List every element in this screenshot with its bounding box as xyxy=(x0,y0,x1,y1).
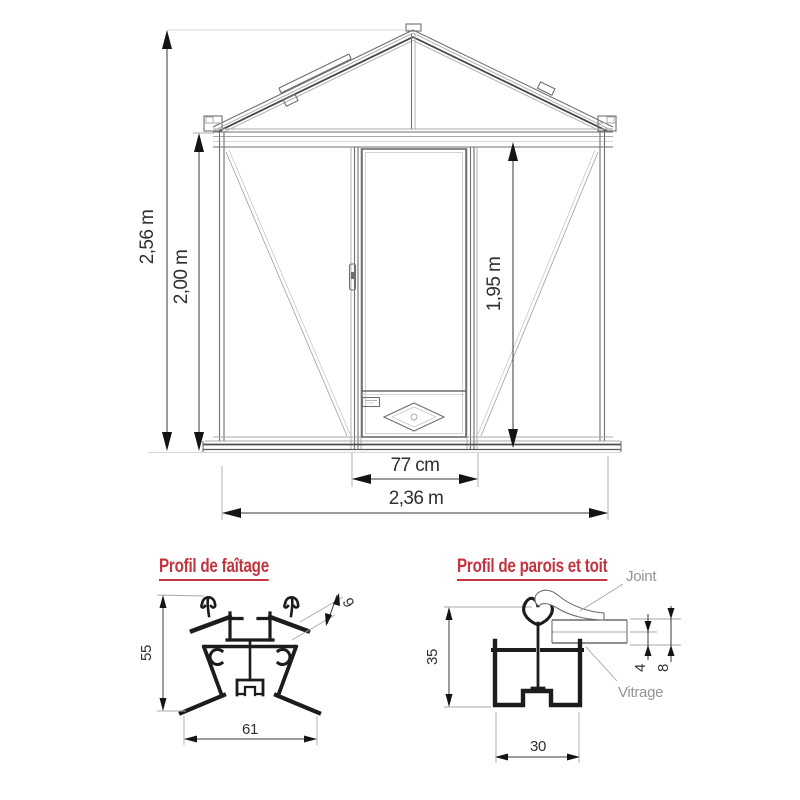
dim-wall-profile-height-label: 35 xyxy=(424,649,441,665)
dim-wall-profile-width-label: 30 xyxy=(530,738,546,755)
door-label-plate xyxy=(363,398,380,407)
dim-wall-height: 2,00 m xyxy=(171,133,214,451)
technical-drawing-canvas: 2,56 m 2,00 m 1,95 m xyxy=(0,0,800,800)
dim-total-height: 2,56 m xyxy=(137,30,411,451)
wall-roof-profile-title: Profil de parois et toit xyxy=(457,557,607,581)
dim-wall-profile-width: 30 xyxy=(495,712,580,763)
vitrage-label: Vitrage xyxy=(618,684,663,701)
dim-ridge-height-label: 55 xyxy=(138,645,155,661)
wall-frame xyxy=(213,132,613,450)
ridge-profile-title: Profil de faîtage xyxy=(159,557,269,581)
vent-latch xyxy=(283,94,298,106)
glass-panel xyxy=(552,620,627,643)
gable-roof xyxy=(204,24,616,147)
dim-ridge-height: 55 xyxy=(138,595,204,711)
roof-vent xyxy=(279,54,351,106)
joint-seal xyxy=(535,590,604,620)
dim-wall-profile-height: 35 xyxy=(424,607,532,707)
greenhouse-front-elevation: 2,56 m 2,00 m 1,95 m xyxy=(137,24,621,520)
diagonal-brace-left xyxy=(226,150,350,436)
drawing-svg: 2,56 m 2,00 m 1,95 m xyxy=(0,0,800,800)
door-diamond-plate xyxy=(384,403,444,431)
dim-glass-total-label: 8 xyxy=(655,664,672,672)
dim-ridge-width-label: 61 xyxy=(242,721,258,738)
dim-total-width-label: 2,36 m xyxy=(389,488,444,509)
dim-ridge-width: 61 xyxy=(184,716,317,745)
dim-ridge-glazing-label: 9 xyxy=(339,595,358,610)
ridge-profile-shape xyxy=(181,597,319,713)
callouts: Joint Vitrage xyxy=(580,568,663,701)
door xyxy=(350,149,467,437)
dim-door-height-label: 1,95 m xyxy=(484,257,505,312)
dim-wall-height-label: 2,00 m xyxy=(171,250,192,305)
dim-door-width: 77 cm xyxy=(352,453,478,487)
joint-label: Joint xyxy=(626,568,657,585)
dim-total-height-label: 2,56 m xyxy=(137,210,158,265)
base-rail xyxy=(148,441,621,453)
dim-glass-label: 4 xyxy=(632,664,649,672)
ridge-profile-drawing: 55 61 9 xyxy=(138,593,357,745)
wall-roof-profile-drawing: 35 xyxy=(424,568,681,763)
dim-door-height: 1,95 m xyxy=(484,142,518,448)
roof-clip xyxy=(537,82,554,95)
dim-door-width-label: 77 cm xyxy=(391,455,440,476)
dim-glass-stack: 4 8 xyxy=(630,606,681,672)
dim-ridge-glazing: 9 xyxy=(292,593,357,640)
